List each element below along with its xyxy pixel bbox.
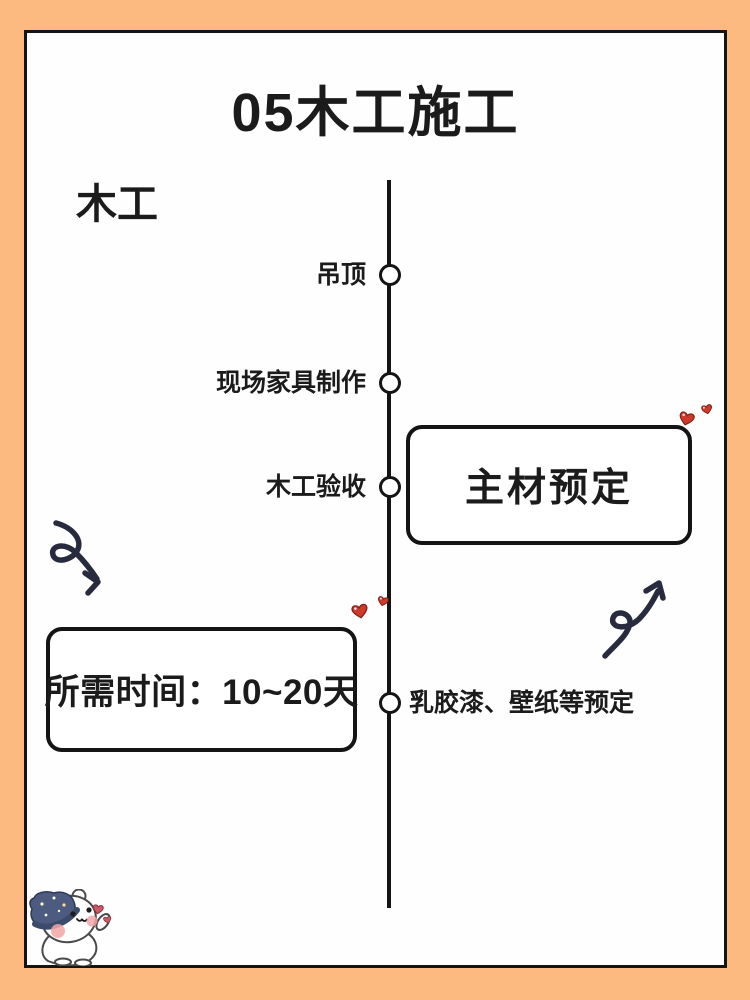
category-label: 木工 <box>76 170 158 230</box>
bear-foot <box>75 960 91 967</box>
curly-arrow-down-right-icon <box>44 518 118 602</box>
heart-icon <box>91 903 104 916</box>
main-material-callout: 主材预定 <box>406 425 692 545</box>
timeline-label-paint-wallpaper: 乳胶漆、壁纸等预定 <box>409 687 634 719</box>
infographic-page: 05木工施工 木工 吊顶 现场家具制作 木工验收 乳胶漆、壁纸等预定 主材预定 … <box>0 0 750 1000</box>
curly-arrow-up-right-icon <box>599 573 675 659</box>
bear-foot <box>55 959 71 966</box>
bear-blush <box>87 916 98 927</box>
timeline-node <box>379 264 401 286</box>
bear-wizard-hat-mascot <box>27 889 132 966</box>
heart-icon <box>350 602 371 622</box>
timeline-label-furniture: 现场家具制作 <box>0 367 366 399</box>
page-title: 05木工施工 <box>24 68 727 147</box>
timeline-axis <box>387 180 391 908</box>
heart-icon <box>376 595 390 608</box>
timeline-node <box>379 372 401 394</box>
timeline-label-acceptance: 木工验收 <box>0 471 366 503</box>
timeline-label-ceiling: 吊顶 <box>0 259 366 291</box>
bear-eye <box>70 911 75 916</box>
duration-callout: 所需时间：10~20天 <box>46 627 357 752</box>
timeline-node <box>379 692 401 714</box>
bear-blush <box>51 924 65 938</box>
timeline-node <box>379 476 401 498</box>
